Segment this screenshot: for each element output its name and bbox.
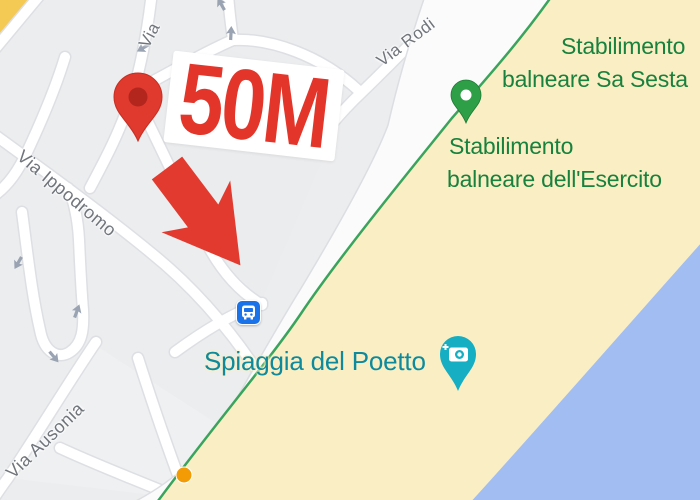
red-pin-body [114, 73, 162, 141]
teal-photo-pin[interactable] [438, 334, 478, 394]
poi-label-esercito-line2[interactable]: balneare dell'Esercito [447, 166, 662, 193]
red-location-pin[interactable] [110, 70, 168, 146]
green-beach-club-pin[interactable] [448, 77, 484, 125]
poi-label-sa-sesta-line2[interactable]: balneare Sa Sesta [502, 66, 688, 93]
poi-label-sa-sesta-line1[interactable]: Stabilimento [561, 33, 685, 60]
poi-label-spiaggia-del-poetto[interactable]: Spiaggia del Poetto [204, 346, 426, 377]
green-pin-center-dot [461, 90, 472, 101]
red-pin-inner-circle [129, 88, 148, 107]
poi-label-esercito-line1[interactable]: Stabilimento [449, 133, 573, 160]
green-pin-body [451, 80, 481, 123]
google-maps-canvas[interactable]: Via Via Rodi Via Ippodromo Via Ausonia S… [0, 0, 700, 500]
poi-dot-orange[interactable] [176, 467, 192, 483]
red-direction-arrow [100, 130, 300, 310]
